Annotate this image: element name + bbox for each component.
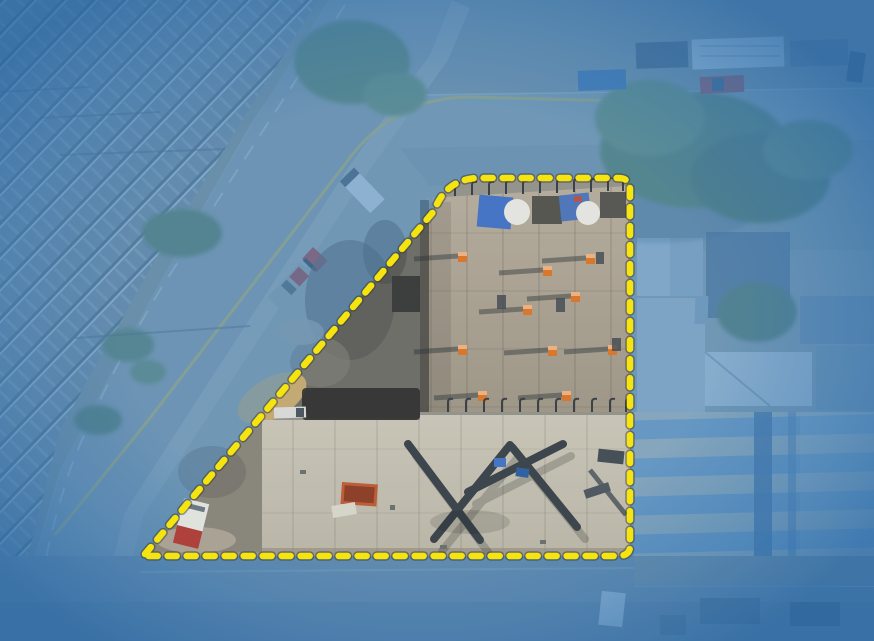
aerial-photo bbox=[0, 0, 874, 641]
aerial-photo-canvas bbox=[0, 0, 874, 641]
haze-overlay bbox=[0, 0, 874, 641]
